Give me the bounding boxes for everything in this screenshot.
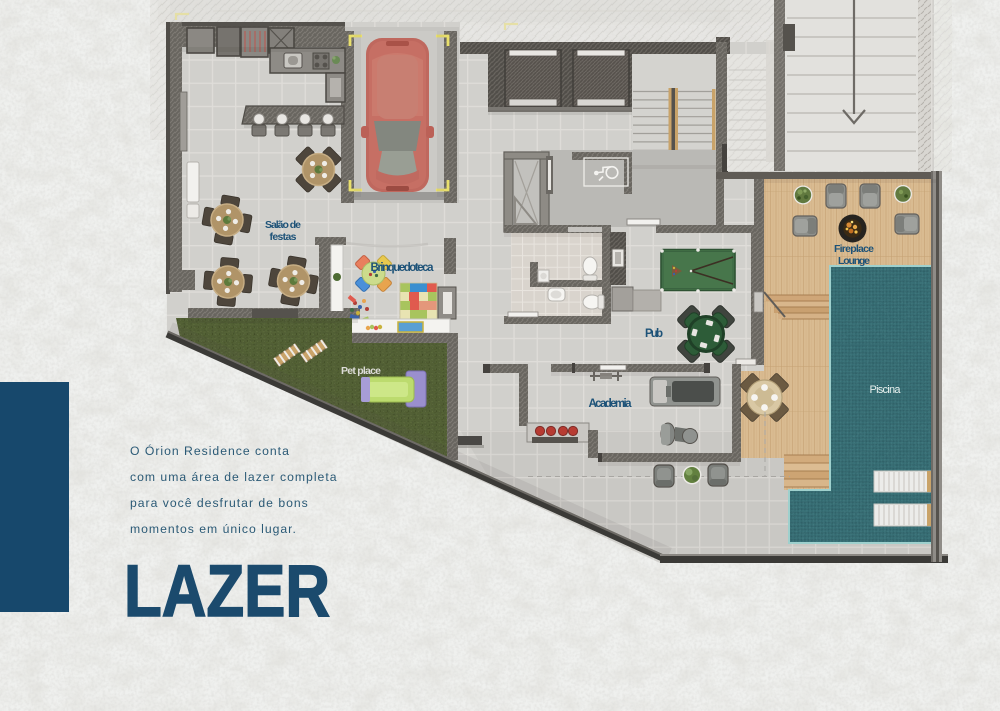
svg-text:para você desfrutar de bons: para você desfrutar de bons [130,496,309,510]
svg-text:Salão de: Salão de [265,219,301,231]
svg-text:Pet place: Pet place [341,365,381,377]
svg-text:momentos em único lugar.: momentos em único lugar. [130,522,297,536]
svg-text:Fireplace: Fireplace [834,243,874,255]
svg-text:O Órion Residence conta: O Órion Residence conta [130,443,290,458]
svg-text:com uma área de lazer completa: com uma área de lazer completa [130,470,337,484]
svg-text:festas: festas [270,231,297,243]
svg-text:LAZER: LAZER [124,551,330,632]
svg-text:Brinquedoteca: Brinquedoteca [371,262,435,274]
svg-text:Pub: Pub [645,328,663,340]
svg-text:Piscina: Piscina [870,384,902,396]
svg-text:Academia: Academia [589,398,633,410]
svg-text:Lounge: Lounge [838,255,870,267]
